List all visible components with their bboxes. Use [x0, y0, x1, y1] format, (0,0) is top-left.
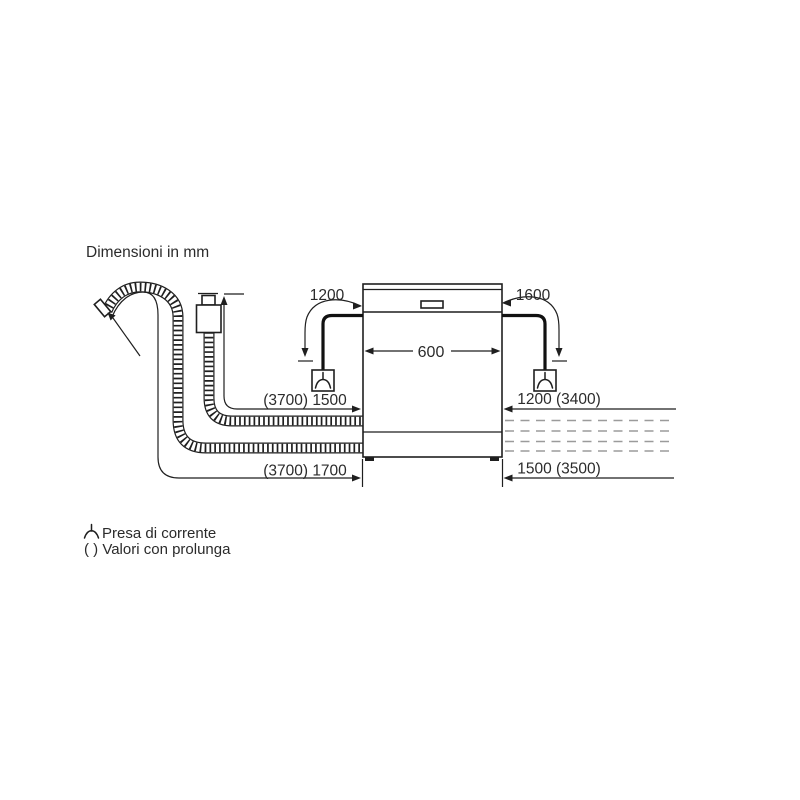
dim-label-supply: (3700) 1500	[263, 392, 347, 409]
installation-diagram: Dimensioni in mm 1200 1600 600 (3700) 15…	[0, 0, 800, 800]
power-cable-left	[323, 316, 363, 371]
control-panel-handle	[421, 301, 443, 308]
dim-label-1200: 1200	[310, 287, 345, 304]
extension-lines	[363, 459, 503, 487]
dim-label-1600: 1600	[516, 287, 551, 304]
dim-label-600: 600	[418, 344, 445, 361]
dim-cable-left-1200	[298, 300, 362, 361]
dim-label-supply-extended: 1200 (3400)	[517, 391, 601, 408]
foot-right	[490, 457, 499, 461]
dim-label-drain-extended: 1500 (3500)	[517, 461, 601, 478]
power-cable-right	[502, 316, 545, 371]
extended-hose-dashes	[505, 421, 672, 452]
diagram-title: Dimensioni in mm	[86, 244, 209, 261]
diagram-canvas: Dimensioni in mm 1200 1600 600 (3700) 15…	[0, 0, 800, 800]
power-socket-icon-left	[312, 370, 334, 391]
legend-socket-label: Presa di corrente	[102, 525, 216, 542]
legend: Presa di corrente ( ) Valori con prolung…	[84, 525, 231, 559]
dim-label-drain: (3700) 1700	[263, 463, 347, 480]
dishwasher-body	[363, 284, 502, 461]
legend-prolunga-label: ( ) Valori con prolunga	[84, 541, 231, 558]
foot-left	[365, 457, 374, 461]
power-socket-icon-right	[534, 370, 556, 391]
dim-cable-right-1600	[502, 297, 567, 361]
aquastop-valve	[197, 294, 222, 333]
power-socket-icon	[85, 525, 99, 539]
